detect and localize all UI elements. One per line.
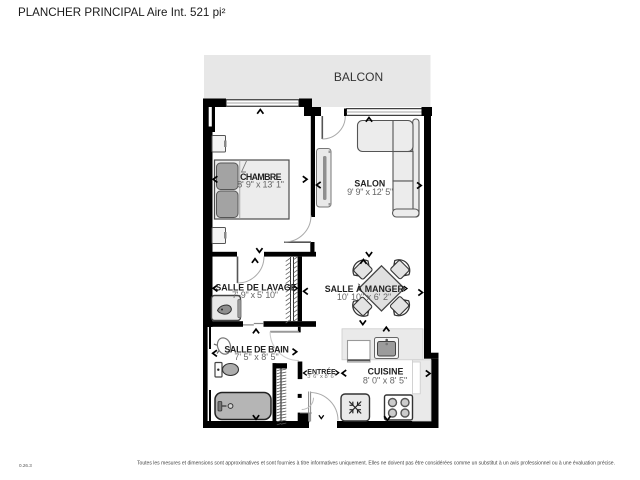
svg-text:7'-9" x 5' 10": 7'-9" x 5' 10" (232, 290, 278, 300)
svg-text:7' 5" x 8' 5": 7' 5" x 8' 5" (234, 352, 278, 362)
svg-text:0.26.3: 0.26.3 (19, 463, 32, 468)
svg-text:BALCON: BALCON (334, 70, 383, 84)
svg-text:PLANCHER PRINCIPAL Aire Int. 5: PLANCHER PRINCIPAL Aire Int. 521 pi² (18, 6, 226, 19)
svg-text:9' 9" x 12' 5": 9' 9" x 12' 5" (347, 187, 393, 197)
svg-text:3' 6" x 8' 6": 3' 6" x 8' 6" (307, 374, 336, 380)
svg-text:Toutes les mesures et dimensio: Toutes les mesures et dimensions sont ap… (137, 461, 615, 467)
svg-text:8' 0" x 8' 5": 8' 0" x 8' 5" (363, 376, 407, 386)
svg-text:8' 9" x 13' 1": 8' 9" x 13' 1" (237, 180, 284, 190)
svg-text:10' 10" x 6' 2": 10' 10" x 6' 2" (337, 292, 391, 302)
